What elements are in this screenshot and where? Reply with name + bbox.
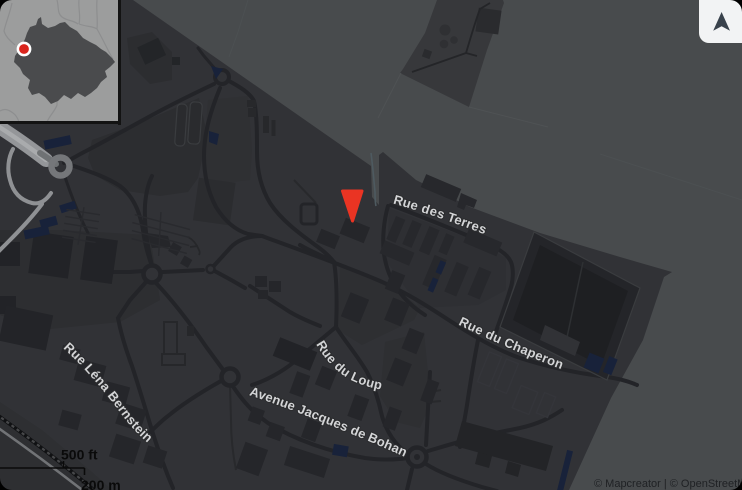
svg-text:© Mapcreator | © OpenStreetMap: © Mapcreator | © OpenStreetMap — [594, 478, 742, 490]
svg-text:200 m: 200 m — [81, 477, 121, 490]
svg-text:500 ft: 500 ft — [61, 447, 98, 463]
